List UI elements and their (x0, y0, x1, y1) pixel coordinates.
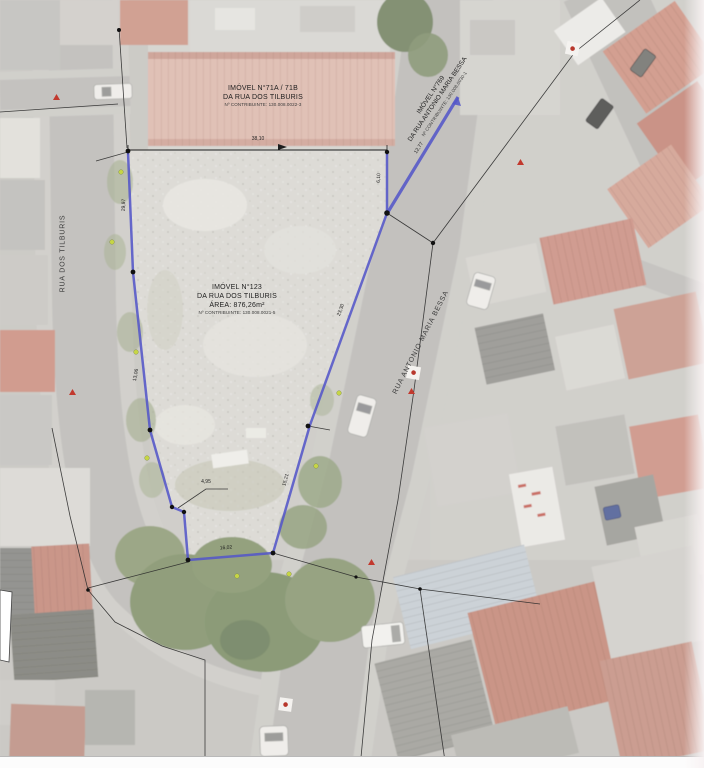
aerial-imagery (0, 0, 704, 768)
aerial-survey-map: IMÓVEL N°71A / 71B DA RUA DOS TILBURIS N… (0, 0, 704, 768)
sheet-margin-bottom (0, 756, 704, 768)
sheet-margin-right (684, 0, 704, 768)
haze-overlay (0, 0, 704, 768)
